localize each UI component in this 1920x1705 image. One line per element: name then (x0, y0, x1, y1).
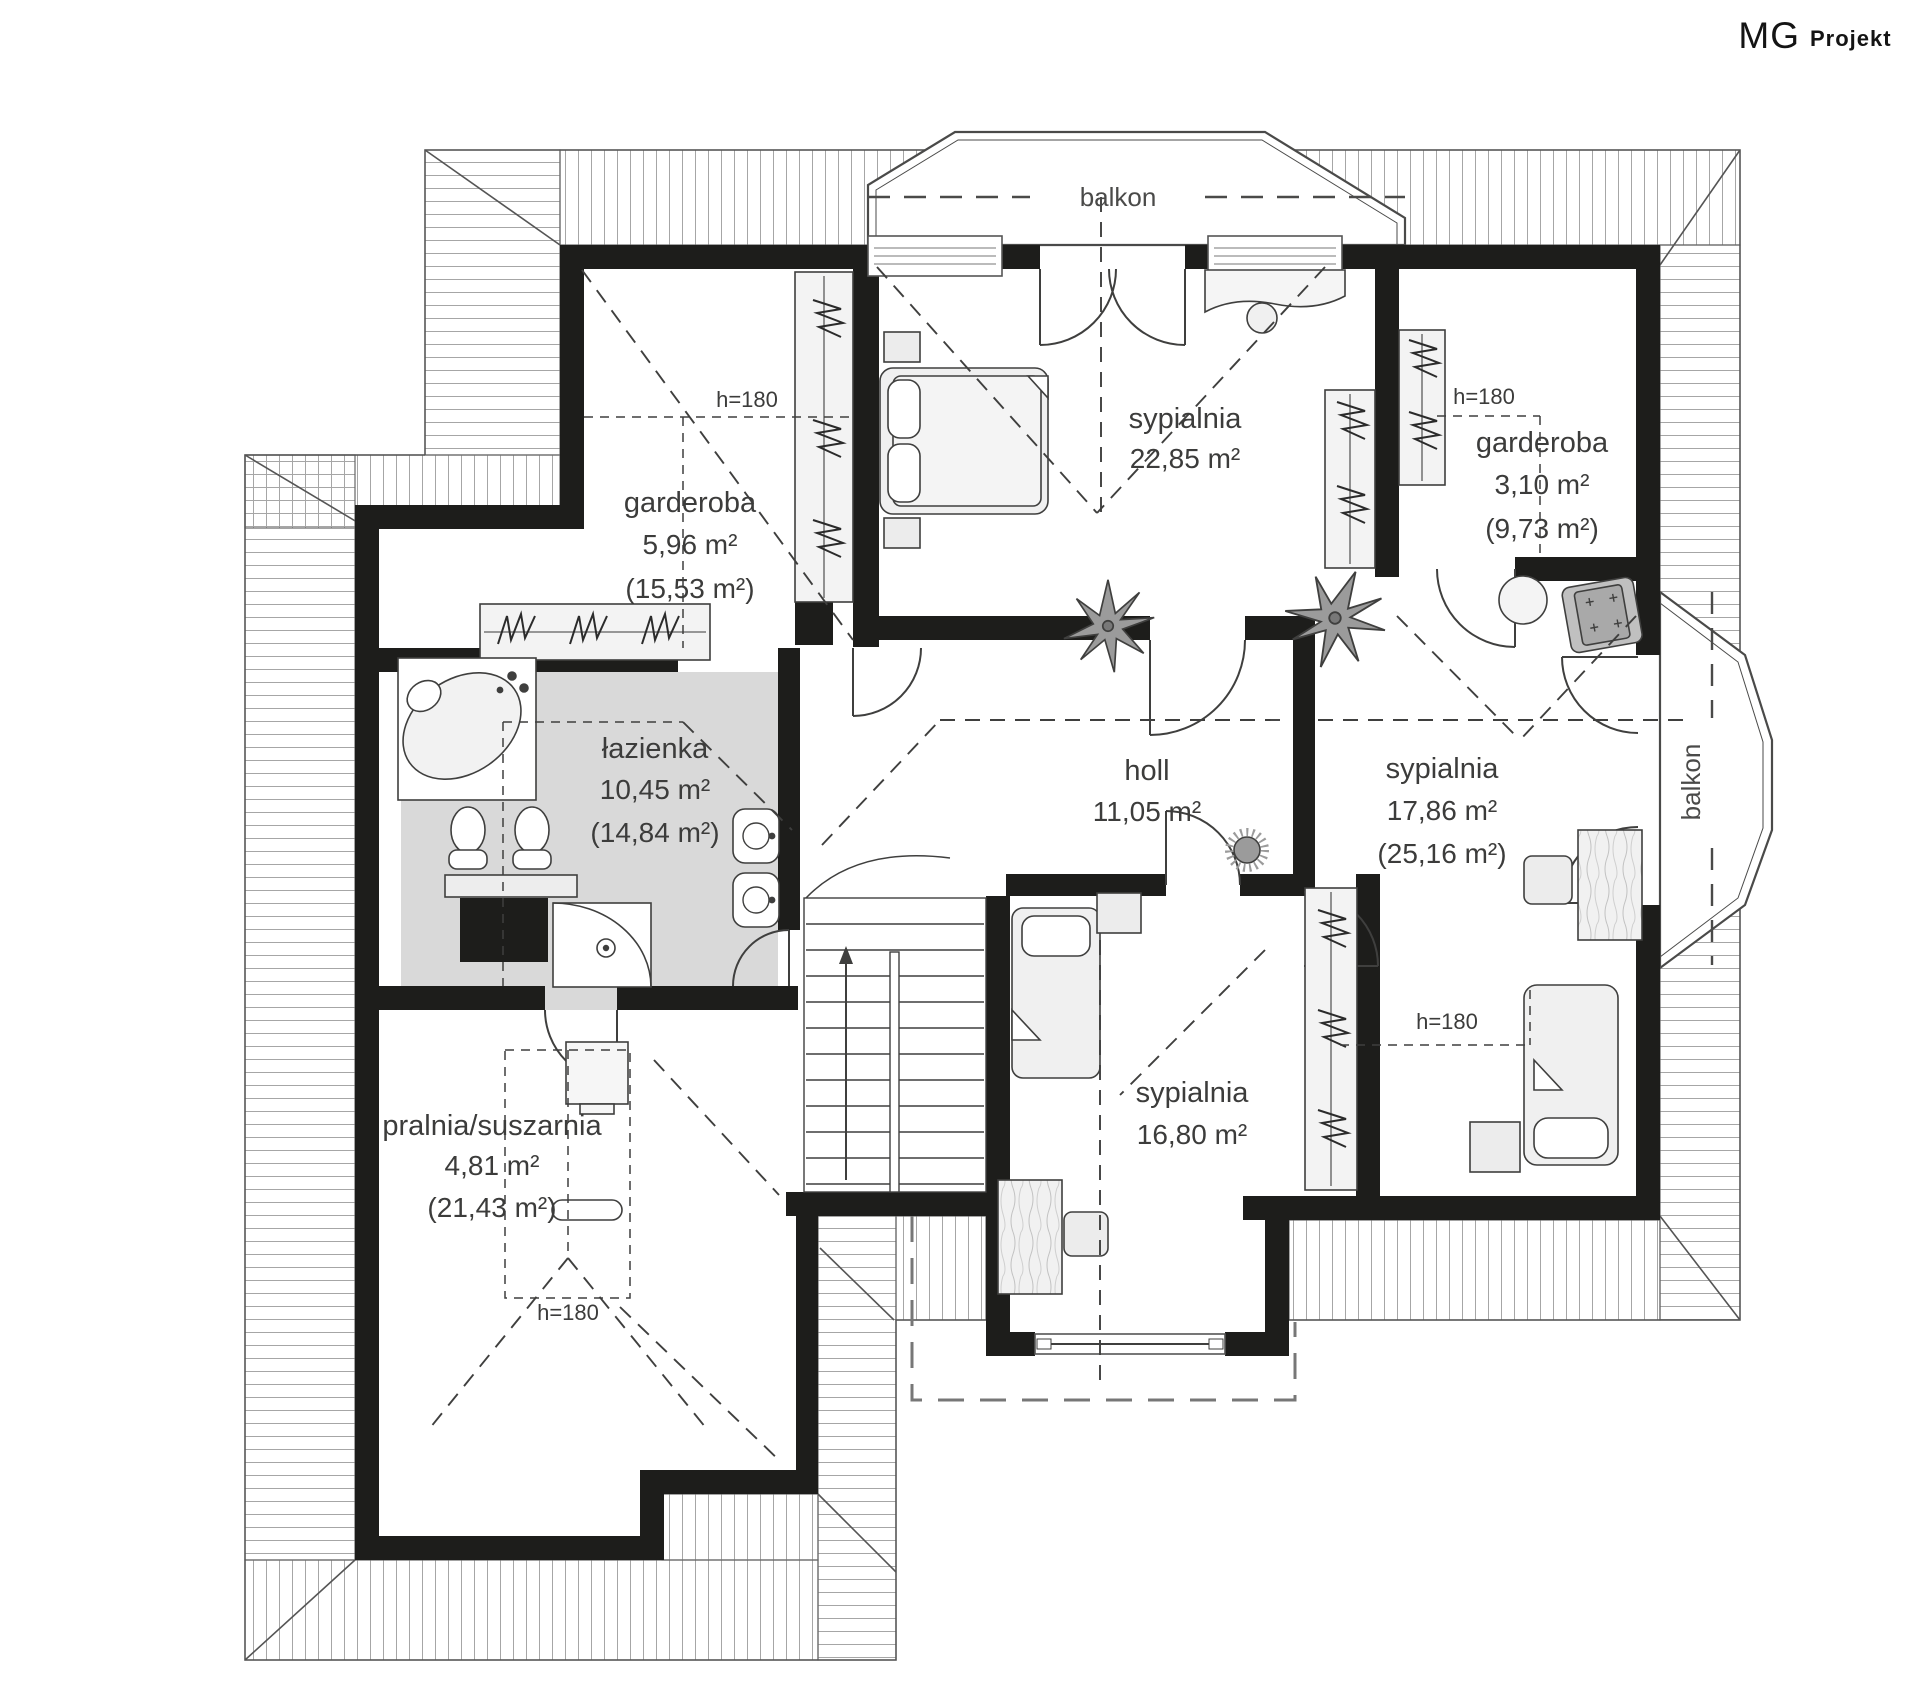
height-marker: h=180 (716, 387, 778, 412)
floor-plan-svg: balkon balkon sypialnia 22,85 m² gardero… (0, 0, 1920, 1705)
armchair-symbol (1561, 576, 1643, 654)
balcony-right-label: balkon (1676, 744, 1706, 821)
logo-projekt-text: Projekt (1810, 26, 1892, 51)
room-area: 5,96 m² (643, 529, 738, 560)
room-label: sypialnia (1136, 1077, 1250, 1109)
door-balcony-top (1040, 269, 1185, 345)
room-area-total: (25,16 m²) (1377, 838, 1506, 869)
height-marker: h=180 (1416, 1009, 1478, 1034)
room-area: 22,85 m² (1130, 443, 1241, 474)
washbasin-symbol (733, 873, 779, 927)
room-label: garderoba (624, 487, 757, 519)
room-area: 4,81 m² (445, 1150, 540, 1181)
room-area-total: (21,43 m²) (427, 1192, 556, 1223)
wardrobe-symbol (480, 604, 710, 660)
room-area-total: (9,73 m²) (1485, 513, 1599, 544)
washbasin-symbol (733, 809, 779, 863)
room-area: 11,05 m² (1093, 796, 1201, 827)
desk-symbol (998, 1180, 1108, 1294)
room-area: 16,80 m² (1137, 1119, 1248, 1150)
toilet-symbol (513, 807, 551, 869)
desk-symbol (1524, 830, 1642, 940)
vanity-table-symbol (1205, 270, 1345, 333)
wardrobe-symbol (1399, 330, 1445, 485)
window-bottom (1035, 1334, 1225, 1354)
room-area: 10,45 m² (600, 774, 711, 805)
ironing-board-symbol (552, 1200, 622, 1220)
single-bed-symbol (1012, 893, 1141, 1078)
room-area: 17,86 m² (1387, 795, 1498, 826)
room-label: holl (1124, 755, 1169, 787)
plant-icon (1229, 832, 1265, 868)
wardrobe-symbol (1325, 390, 1375, 568)
room-label: łazienka (602, 733, 709, 765)
washing-machine-symbol (566, 1042, 628, 1114)
balcony-top-label: balkon (1080, 182, 1157, 212)
single-bed-symbol (1470, 985, 1618, 1172)
wardrobe-symbol (795, 272, 853, 602)
toilet-symbol (449, 807, 487, 869)
shower-symbol (553, 903, 651, 987)
wardrobe-symbol (1305, 888, 1357, 1190)
height-marker: h=180 (537, 1300, 599, 1325)
height-marker: h=180 (1453, 384, 1515, 409)
door-garderoba1 (853, 648, 921, 716)
staircase (804, 856, 986, 1192)
room-label: sypialnia (1129, 403, 1243, 435)
brand-logo: MG Projekt (1738, 15, 1891, 56)
room-label: pralnia/suszarnia (382, 1110, 602, 1142)
window-top-left (868, 236, 1002, 276)
room-area: 3,10 m² (1495, 469, 1590, 500)
floor-plan-page: balkon balkon sypialnia 22,85 m² gardero… (0, 0, 1920, 1705)
room-label: garderoba (1476, 427, 1609, 459)
room-area-total: (14,84 m²) (590, 817, 719, 848)
corner-bathtub-symbol (383, 651, 542, 801)
room-label: sypialnia (1386, 753, 1500, 785)
round-table-symbol (1499, 576, 1547, 624)
room-area-total: (15,53 m²) (625, 573, 754, 604)
logo-mg-text: MG (1738, 15, 1800, 56)
bath-counter (445, 875, 577, 897)
